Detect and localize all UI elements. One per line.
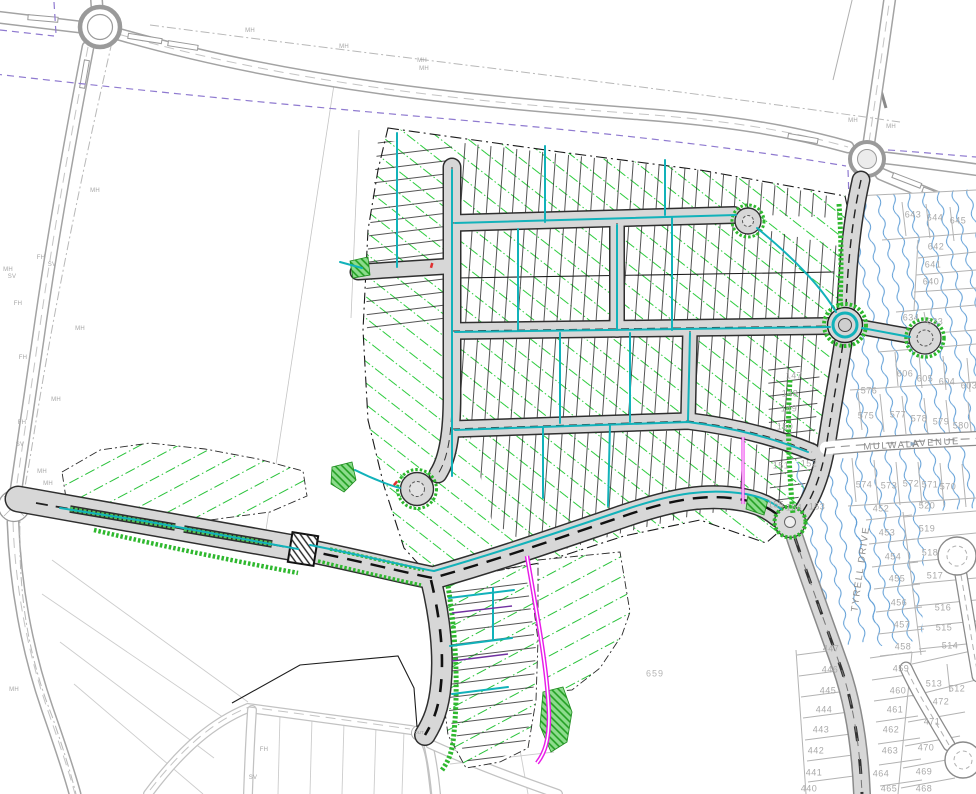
bridge-culvert	[288, 532, 318, 566]
culdesac-east-1	[938, 537, 976, 575]
hammerhead-east	[909, 322, 941, 354]
culdesac-east-2	[945, 742, 976, 778]
site-plan-drawing	[0, 0, 976, 794]
civil-site-plan: MULWALAAVENUETYRELL DRIVE►64364464564264…	[0, 0, 976, 794]
reserve-659-patch	[538, 552, 630, 692]
